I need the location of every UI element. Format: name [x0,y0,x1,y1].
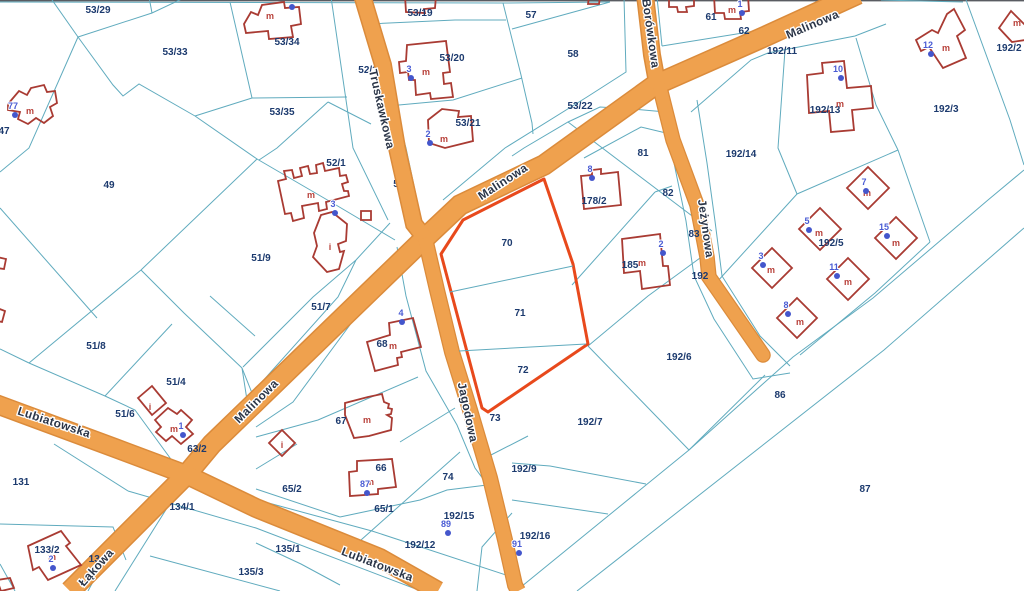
svg-text:86: 86 [774,390,786,401]
svg-text:m: m [836,99,844,109]
svg-text:53/29: 53/29 [85,5,110,16]
svg-text:1: 1 [737,0,742,9]
svg-text:192/2: 192/2 [996,43,1021,54]
svg-text:192/3: 192/3 [933,104,958,115]
svg-text:73: 73 [489,413,501,424]
svg-text:2: 2 [425,129,430,139]
svg-text:81: 81 [637,148,649,159]
svg-text:192/11: 192/11 [767,46,797,57]
svg-text:192/6: 192/6 [666,352,691,363]
svg-text:7: 7 [861,177,866,187]
svg-text:m: m [389,341,397,351]
svg-text:77: 77 [8,101,18,111]
svg-text:53/22: 53/22 [567,101,592,112]
svg-text:51/4: 51/4 [166,377,186,388]
svg-text:15: 15 [879,222,889,232]
svg-text:2: 2 [658,239,663,249]
svg-text:52/1: 52/1 [326,158,346,169]
svg-text:91: 91 [512,539,522,549]
svg-text:82: 82 [662,188,674,199]
svg-text:3: 3 [758,251,763,261]
svg-text:m: m [440,134,448,144]
svg-text:51/9: 51/9 [251,253,271,264]
svg-text:192/5: 192/5 [818,238,843,249]
svg-text:58: 58 [567,49,579,60]
svg-text:11: 11 [829,262,839,272]
svg-text:i: i [281,440,284,450]
svg-text:m: m [26,106,34,116]
svg-text:53/19: 53/19 [407,8,432,19]
svg-text:72: 72 [517,365,529,376]
svg-text:m: m [1013,18,1021,28]
svg-text:68: 68 [376,339,388,350]
svg-text:i: i [329,242,332,252]
svg-text:66: 66 [375,463,387,474]
svg-text:51/7: 51/7 [311,302,331,313]
svg-text:63/2: 63/2 [187,444,207,455]
svg-text:47: 47 [0,126,10,137]
svg-text:m: m [767,265,775,275]
svg-text:87: 87 [360,479,370,489]
svg-text:12: 12 [923,40,933,50]
svg-text:134/1: 134/1 [169,502,194,513]
svg-text:61: 61 [705,12,717,23]
svg-text:185: 185 [622,260,639,271]
svg-text:62: 62 [738,26,750,37]
svg-text:53/21: 53/21 [455,118,480,129]
svg-text:51/6: 51/6 [115,409,135,420]
svg-text:m: m [638,258,646,268]
svg-text:i: i [149,402,152,412]
svg-text:m: m [796,317,804,327]
svg-text:192/16: 192/16 [520,531,551,542]
svg-text:53/20: 53/20 [439,53,464,64]
svg-text:131: 131 [13,477,30,488]
svg-text:m: m [844,277,852,287]
svg-text:8: 8 [783,300,788,310]
svg-text:192/12: 192/12 [405,540,436,551]
svg-text:m: m [728,5,736,15]
svg-text:192/9: 192/9 [511,464,536,475]
svg-text:65/2: 65/2 [282,484,302,495]
svg-text:1: 1 [178,421,183,431]
svg-text:53/34: 53/34 [274,37,299,48]
svg-text:65/1: 65/1 [374,504,394,515]
svg-text:m: m [422,67,430,77]
svg-text:49: 49 [103,180,115,191]
svg-text:89: 89 [441,519,451,529]
svg-text:70: 70 [501,238,513,249]
svg-text:5: 5 [804,216,809,226]
svg-text:87: 87 [859,484,871,495]
svg-text:83: 83 [688,229,700,240]
svg-text:m: m [307,190,315,200]
svg-text:192/14: 192/14 [726,149,757,160]
svg-text:67: 67 [335,416,347,427]
svg-text:m: m [363,415,371,425]
svg-text:m: m [892,238,900,248]
svg-text:m: m [266,11,274,21]
svg-text:135/3: 135/3 [238,567,263,578]
svg-text:71: 71 [514,308,526,319]
svg-text:2: 2 [48,554,53,564]
svg-text:74: 74 [442,472,454,483]
svg-text:51/8: 51/8 [86,341,106,352]
svg-text:m: m [815,228,823,238]
svg-text:m: m [942,43,950,53]
svg-text:57: 57 [525,10,537,21]
svg-text:m: m [170,424,178,434]
svg-text:3: 3 [330,199,335,209]
svg-text:53/33: 53/33 [162,47,187,58]
svg-text:178/2: 178/2 [581,196,606,207]
svg-text:3: 3 [406,64,411,74]
svg-text:4: 4 [398,308,403,318]
svg-text:192/7: 192/7 [577,417,602,428]
svg-text:8: 8 [587,164,592,174]
svg-text:53/35: 53/35 [269,107,294,118]
svg-text:192: 192 [692,271,709,282]
svg-text:135/1: 135/1 [275,544,300,555]
svg-text:10: 10 [833,64,843,74]
